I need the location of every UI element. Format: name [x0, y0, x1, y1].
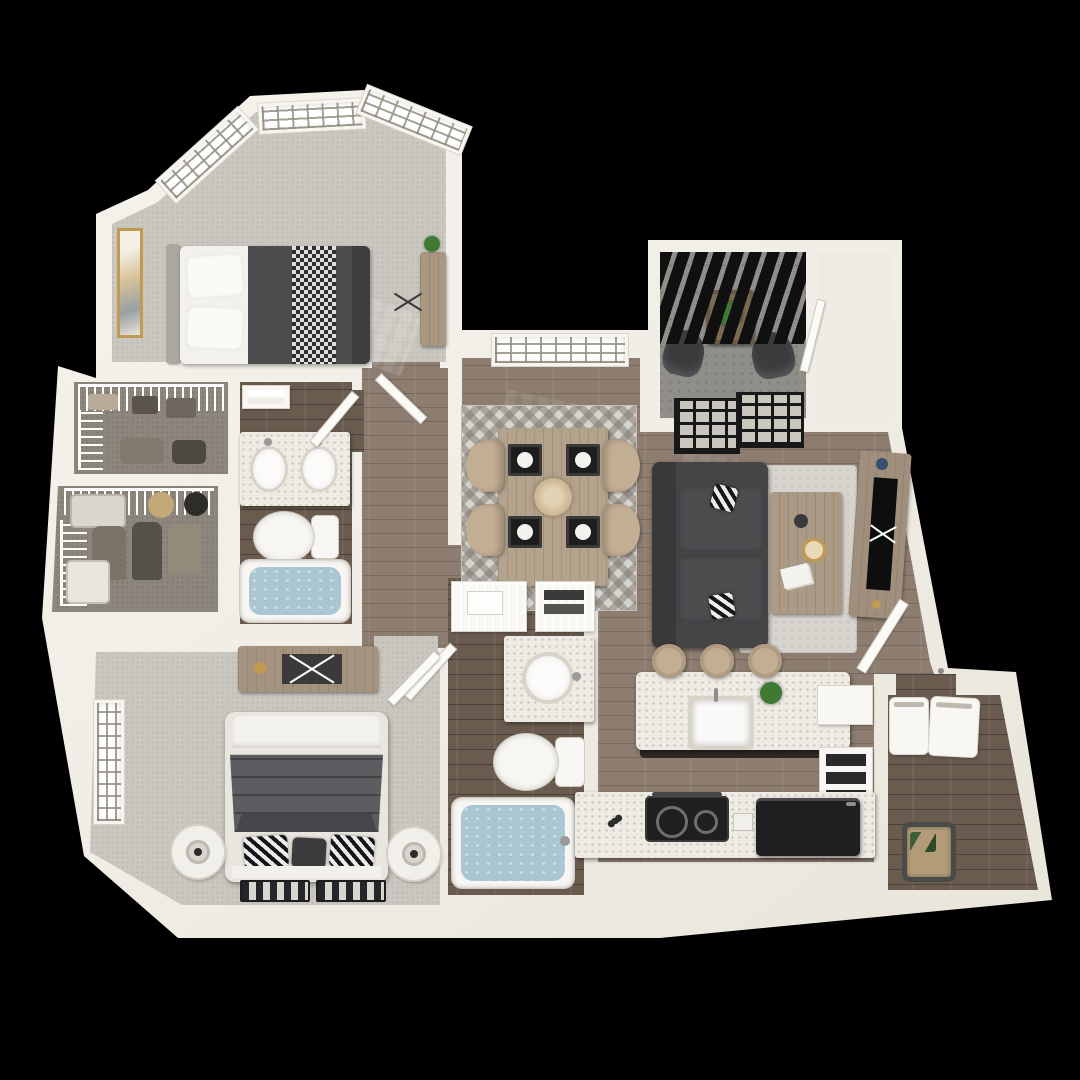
kitchen-upper-cabinet	[818, 686, 872, 724]
bedroom-2-rug-right	[316, 880, 386, 902]
dining-chair-bottom-left	[466, 504, 504, 556]
bath-2-toilet-bowl	[494, 734, 558, 790]
open-shelf-slot-2	[826, 772, 866, 784]
bar-stool-1	[652, 644, 686, 678]
bath-2-towels-white	[468, 592, 502, 614]
closet-a-bag	[120, 438, 164, 464]
cooktop-burner-small	[694, 810, 718, 834]
cooktop-burner-large	[656, 806, 688, 838]
bath-2-towels-dark	[544, 590, 584, 600]
bar-stool-2	[700, 644, 734, 678]
bed-1-pillow-bottom	[185, 305, 245, 352]
bath-1-faucet-left	[264, 438, 272, 446]
nightstand-right-lamp-finial	[410, 850, 418, 858]
wall-art	[117, 228, 143, 338]
bath-1-sink-right	[300, 446, 338, 492]
bed-1-pillow-top	[185, 252, 246, 300]
nightstand-left-lamp-finial	[194, 848, 202, 856]
bed-1-throw-blanket	[292, 246, 336, 364]
bed-2-duvet-edge	[236, 814, 377, 832]
entry-door-handle	[938, 668, 944, 674]
plate-4	[575, 524, 591, 540]
plate-2	[575, 452, 591, 468]
bath-1-toilet-bowl	[254, 512, 314, 562]
coffee-table-gold-bowl	[802, 538, 826, 562]
island-faucet	[714, 688, 718, 702]
plate-3	[517, 524, 533, 540]
bath-1-tub-water	[249, 567, 341, 615]
closet-a-clothes-1	[88, 394, 118, 410]
pergola-slats	[660, 252, 806, 344]
sliding-glass-door-left-panel	[674, 398, 740, 454]
coffee-table-vase	[794, 514, 808, 528]
console-decor-bowl	[876, 458, 888, 470]
bed-1-foot-band	[352, 246, 370, 364]
sliding-glass-door-right-panel	[736, 392, 804, 448]
sofa-pillow-bottom	[708, 592, 736, 620]
laundry-basket-clothes	[910, 832, 936, 852]
cooktop-handle	[652, 792, 722, 797]
bath-2-tub-water	[461, 805, 565, 881]
closet-b-hat	[148, 492, 174, 518]
refrigerator	[756, 798, 860, 856]
kitchen-utensil-sprig	[606, 814, 624, 828]
closet-b-basket	[66, 560, 110, 604]
bath-2-toilet-tank	[556, 738, 584, 786]
closet-b-hat-dark	[184, 492, 208, 516]
dining-chair-top-left	[466, 440, 504, 492]
bath-2-bathtub	[452, 798, 574, 888]
refrigerator-handle	[846, 802, 856, 806]
bath-2-tub-faucet	[560, 836, 570, 846]
bed-2-sheet-band	[232, 866, 381, 878]
plate-1	[517, 452, 533, 468]
island-sink	[688, 696, 754, 750]
closet-a-bag-dark	[172, 440, 206, 464]
sofa-back	[652, 462, 676, 648]
floor-plan-canvas	[0, 0, 1080, 1080]
console-decor-gold	[872, 600, 881, 609]
bath-1-sink-left	[250, 446, 288, 492]
bath-1-towels	[248, 390, 284, 396]
bath-1-bathtub	[240, 560, 350, 622]
bedroom-1-plant	[424, 236, 440, 252]
kitchen-tray	[734, 814, 752, 830]
dining-centerpiece	[534, 478, 572, 516]
bar-stool-3	[748, 644, 782, 678]
island-plant	[760, 682, 782, 704]
bedroom-2-dresser-x-decor	[286, 654, 338, 684]
bay-window-center	[258, 98, 365, 134]
bed-2-pillow-right	[329, 834, 376, 870]
closet-b-hanging-2	[132, 522, 162, 580]
bath-2-faucet	[572, 672, 581, 681]
tv-stand-x	[866, 505, 900, 563]
closet-a-clothes-3	[166, 398, 196, 418]
washer-controls	[894, 702, 924, 707]
bedroom-2-dresser-gold-item	[254, 662, 266, 674]
open-shelf-slot-1	[826, 754, 866, 766]
bed-2-pillow-center	[291, 837, 327, 869]
bed-2-pillow-left	[243, 835, 289, 870]
dining-window	[492, 334, 628, 366]
closet-a-clothes-2	[132, 396, 158, 414]
closet-a-shelf-side	[78, 410, 103, 470]
bed-1-headboard	[166, 244, 180, 364]
bed-2-mattress-fold	[232, 716, 381, 748]
bedroom-2-rug-left	[240, 880, 310, 902]
laundry-basket	[902, 822, 956, 882]
closet-b-suitcase	[70, 494, 126, 528]
closet-b-hanging-3	[168, 524, 202, 574]
bath-2-sink	[522, 652, 574, 704]
bath-1-toilet-tank	[312, 516, 338, 558]
ceiling-fan-icon	[392, 286, 424, 318]
bedroom-2-window	[94, 700, 124, 824]
